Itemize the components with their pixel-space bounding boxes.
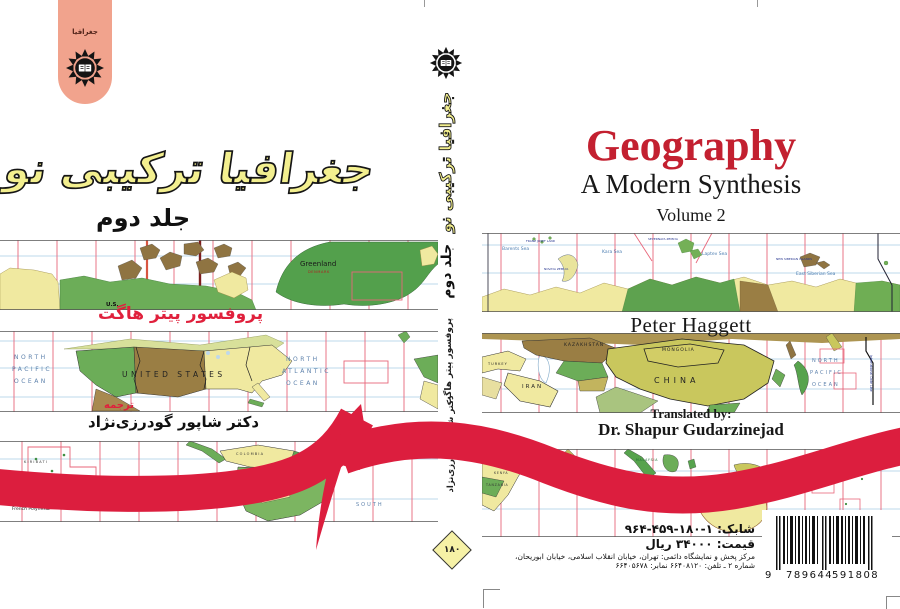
map-label-franz-josef-land: FRANZ JOSEF LAND	[526, 239, 556, 243]
barcode-digit-left: 9	[765, 570, 771, 581]
map-strip-back-united-states: NORTH PACIFIC OCEAN NORTH ATLANTIC OCEAN…	[0, 331, 438, 412]
spine-title-text: جغرافیا ترکیبی نو	[436, 92, 455, 233]
spine-title: جغرافیا ترکیبی نو جلد دوم	[436, 92, 455, 292]
crop-mark-top-left	[424, 0, 425, 7]
map-label-north-pacific-1: NORTH	[14, 354, 48, 361]
barcode-digits-group1: 789644	[786, 570, 833, 581]
front-volume: Volume 2	[482, 205, 900, 226]
map-label-china: CHINA	[654, 376, 699, 385]
map-label-malaysia: MALAYSIA	[636, 458, 658, 462]
publisher-address-line2: شماره ۲ ـ تلفن: ۶۶۴۰۸۱۲۰ نمابر: ۶۶۴۰۵۶۷۸	[485, 561, 755, 570]
back-translated-by-label: ترجمه	[104, 400, 134, 411]
front-subtitle: A Modern Synthesis	[482, 169, 900, 200]
back-translator-name: دکتر شاپور گودرزی‌نژاد	[88, 413, 259, 431]
spine-volume: جلد دوم	[439, 244, 455, 299]
crop-mark-bottom-left	[483, 589, 500, 608]
map-label-french-polynesia: French Polynesia	[12, 506, 50, 512]
map-label-north-atlantic-1: NORTH	[286, 356, 320, 363]
price: قیمت: ۳۴۰۰۰ ریال	[485, 537, 755, 552]
map-label-somalia: SOMALIA	[512, 458, 532, 462]
map-label-tanzania: TANZANIA	[485, 483, 509, 487]
book-cover-spread: جغرافیا جغرافیا ترکیبی نو جلد دوم پروفسو…	[0, 0, 900, 609]
samt-logo-icon	[429, 46, 463, 80]
map-label-barents-sea: Barents Sea	[502, 246, 529, 252]
map-label-new-siberian-islands: NEW SIBERIAN ISLANDS	[776, 257, 812, 261]
isbn-barcode: 9 789644 591808	[762, 510, 892, 582]
map-strip-back-pacific-south-america: KIRIBATI COLOMBIA French Polynesia OCEAN…	[0, 441, 438, 522]
map-label-laptev-sea: Laptev Sea	[702, 251, 727, 257]
map-label-united-states: UNITED STATES	[122, 370, 226, 379]
map-label-north-pacific-1: NORTH	[812, 358, 840, 364]
samt-logo-icon	[65, 48, 105, 88]
map-label-kara-sea: Kara Sea	[602, 249, 622, 255]
crop-mark-top-right	[757, 0, 758, 7]
map-label-north-pacific-3: OCEAN	[812, 382, 840, 388]
map-strip-back-arctic-america: Greenland DENMARK U.S.	[0, 240, 438, 310]
map-label-denmark: DENMARK	[308, 270, 330, 274]
map-label-novaya-zemlya: NOVAYA ZEMLYA	[544, 267, 569, 271]
crop-mark-bottom-right	[886, 596, 900, 609]
map-label-severnaya-zemlya: SEVERNAYA ZEMLYA	[648, 237, 679, 241]
barcode-digits-group2: 591808	[832, 570, 879, 581]
map-label-greenland: Greenland	[300, 260, 336, 268]
back-author: پروفسور پیتر هاگت	[98, 304, 263, 324]
map-label-north-pacific-3: OCEAN	[14, 378, 48, 385]
map-label-north-atlantic-2: ATLANTIC	[282, 368, 331, 375]
map-label-north-pacific-2: PACIFIC	[12, 366, 52, 373]
map-label-turkey: TURKEY	[487, 362, 508, 366]
map-label-mongolia: MONGOLIA	[662, 347, 695, 353]
publisher-tab: جغرافیا	[58, 0, 112, 104]
map-strip-front-asia: TURKEY IRAN KAZAKHSTAN MONGOLIA CHINA NO…	[482, 333, 900, 413]
map-label-kenya: KENYA	[494, 471, 508, 475]
map-label-international-date-line: International Date Line	[869, 355, 873, 392]
back-volume: جلد دوم	[96, 204, 190, 232]
spine-translator: ترجمه دکتر شاپور گودرزی‌نژاد	[440, 394, 457, 494]
map-label-colombia: COLOMBIA	[236, 452, 264, 456]
spine-translator-name: دکتر شاپور گودرزی‌نژاد	[447, 394, 457, 494]
map-label-south: SOUTH	[356, 502, 384, 508]
publisher-tab-label: جغرافیا	[58, 28, 112, 36]
map-label-kiribati: KIRIBATI	[24, 460, 48, 464]
map-label-north-atlantic-3: OCEAN	[286, 380, 320, 387]
map-label-east-siberian-sea: East Siberian Sea	[796, 271, 836, 277]
front-translator-name: Dr. Shapur Gudarzinejad	[482, 420, 900, 440]
publisher-address-line1: مرکز پخش و نمایشگاه دائمی: تهران، خیابان…	[485, 552, 755, 561]
series-number-badge: ۱۸۰	[432, 530, 472, 570]
front-author: Peter Haggett	[482, 313, 900, 338]
map-label-north-pacific-2: PACIFIC	[810, 370, 843, 376]
back-title: جغرافیا ترکیبی نو	[81, 144, 378, 193]
publisher-info-block: شابک: ۱-۱۸۰-۴۵۹-۹۶۴ قیمت: ۳۴۰۰۰ ریال مرک…	[485, 522, 755, 571]
map-label-iran: IRAN	[522, 384, 543, 390]
front-title: Geography	[482, 120, 900, 171]
map-label-brazil: BRAZIL	[256, 495, 276, 500]
map-label-ocean: OCEAN	[118, 499, 154, 506]
isbn-persian: شابک: ۱-۱۸۰-۴۵۹-۹۶۴	[485, 522, 755, 537]
map-strip-front-arctic-russia: Barents Sea Kara Sea Laptev Sea East Sib…	[482, 233, 900, 312]
spine-author: پروفسور پیتر هاگت	[444, 318, 454, 398]
map-label-kazakhstan: KAZAKHSTAN	[564, 342, 604, 348]
